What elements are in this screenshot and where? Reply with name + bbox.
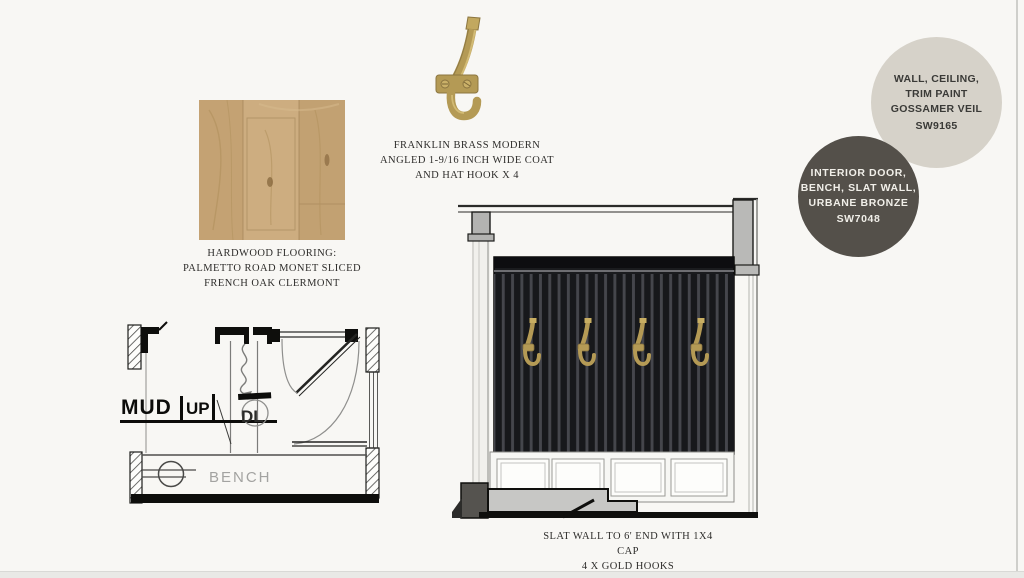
paint-dark-line3: URBANE BRONZE [809, 196, 909, 211]
plan-door-swing-arc-upper [282, 339, 297, 393]
flooring-caption-line3: FRENCH OAK CLERMONT [172, 276, 372, 291]
plan-label-bench: BENCH [209, 469, 272, 486]
page-right-edge [1016, 0, 1018, 578]
plan-wall-bottom [131, 494, 379, 503]
plan-label-mud: MUD [121, 396, 172, 419]
paint-dark-code: SW7048 [837, 212, 881, 227]
elevation-caption: SLAT WALL TO 6' END WITH 1X4 CAP 4 X GOL… [478, 529, 778, 574]
plan-wall-hatch-topleft [128, 325, 141, 369]
paint-dark-line1: INTERIOR DOOR, [811, 166, 907, 181]
paint-light-line3: GOSSAMER VEIL [891, 102, 982, 117]
mudroom-design-board: HARDWOOD FLOORING: PALMETTO ROAD MONET S… [0, 0, 1024, 578]
plan-wall-corner [141, 327, 159, 353]
elevation-caption-line1: SLAT WALL TO 6' END WITH 1X4 [478, 529, 778, 544]
paint-light-code: SW9165 [915, 119, 957, 134]
flooring-caption-line2: PALMETTO ROAD MONET SLICED [172, 261, 372, 276]
plan-label-up: UP [186, 399, 210, 418]
coat-hook-caption-line3: AND HAT HOOK X 4 [367, 168, 567, 183]
paint-swatch-urbane-bronze: INTERIOR DOOR, BENCH, SLAT WALL, URBANE … [798, 136, 919, 257]
elev-1x4-cap [494, 257, 734, 268]
plan-fixture-symbol [159, 462, 184, 487]
brass-coat-hook-icon [435, 16, 490, 128]
elevation-caption-line2: CAP [478, 544, 778, 559]
paint-light-line1: WALL, CEILING, [894, 72, 979, 87]
elev-floor-line [479, 512, 758, 518]
plan-label-dl: DL [241, 407, 264, 426]
elev-left-post [472, 212, 490, 235]
page-bottom-edge [0, 571, 1024, 578]
coat-hook-caption-line1: FRANKLIN BRASS MODERN [367, 138, 567, 153]
elev-right-post [733, 200, 753, 266]
plan-wall-hatch-topright [366, 328, 379, 372]
flooring-caption: HARDWOOD FLOORING: PALMETTO ROAD MONET S… [172, 246, 372, 291]
coat-hook-caption: FRANKLIN BRASS MODERN ANGLED 1-9/16 INCH… [367, 138, 567, 183]
paint-dark-line2: BENCH, SLAT WALL, [801, 181, 917, 196]
mudroom-floor-plan: MUD UP DL BENCH [118, 318, 395, 510]
paint-light-line2: TRIM PAINT [905, 87, 967, 102]
coat-hook-caption-line2: ANGLED 1-9/16 INCH WIDE COAT [367, 153, 567, 168]
plan-door-swing-arc-lower [294, 341, 359, 444]
slat-wall-elevation [452, 194, 762, 524]
plan-wall-hatch-bottomright [366, 448, 379, 498]
hardwood-flooring-swatch [199, 100, 345, 240]
flooring-caption-line1: HARDWOOD FLOORING: [172, 246, 372, 261]
plan-door-leaf-diagonal [296, 334, 357, 393]
plan-stair-break-line [240, 344, 247, 395]
